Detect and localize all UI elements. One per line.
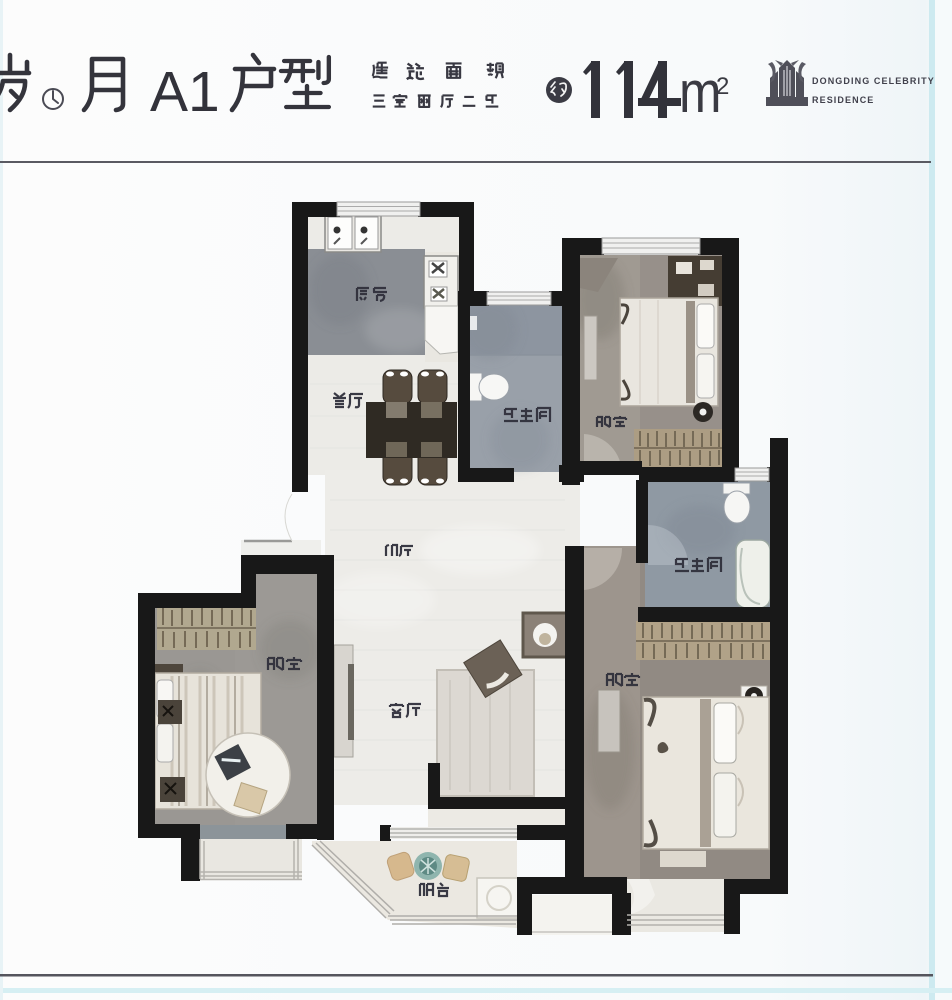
svg-text:2: 2 (716, 73, 729, 100)
svg-text:A1: A1 (150, 60, 220, 124)
svg-text:RESIDENCE: RESIDENCE (812, 95, 874, 105)
svg-text:DONGDING CELEBRITY: DONGDING CELEBRITY (812, 76, 935, 86)
